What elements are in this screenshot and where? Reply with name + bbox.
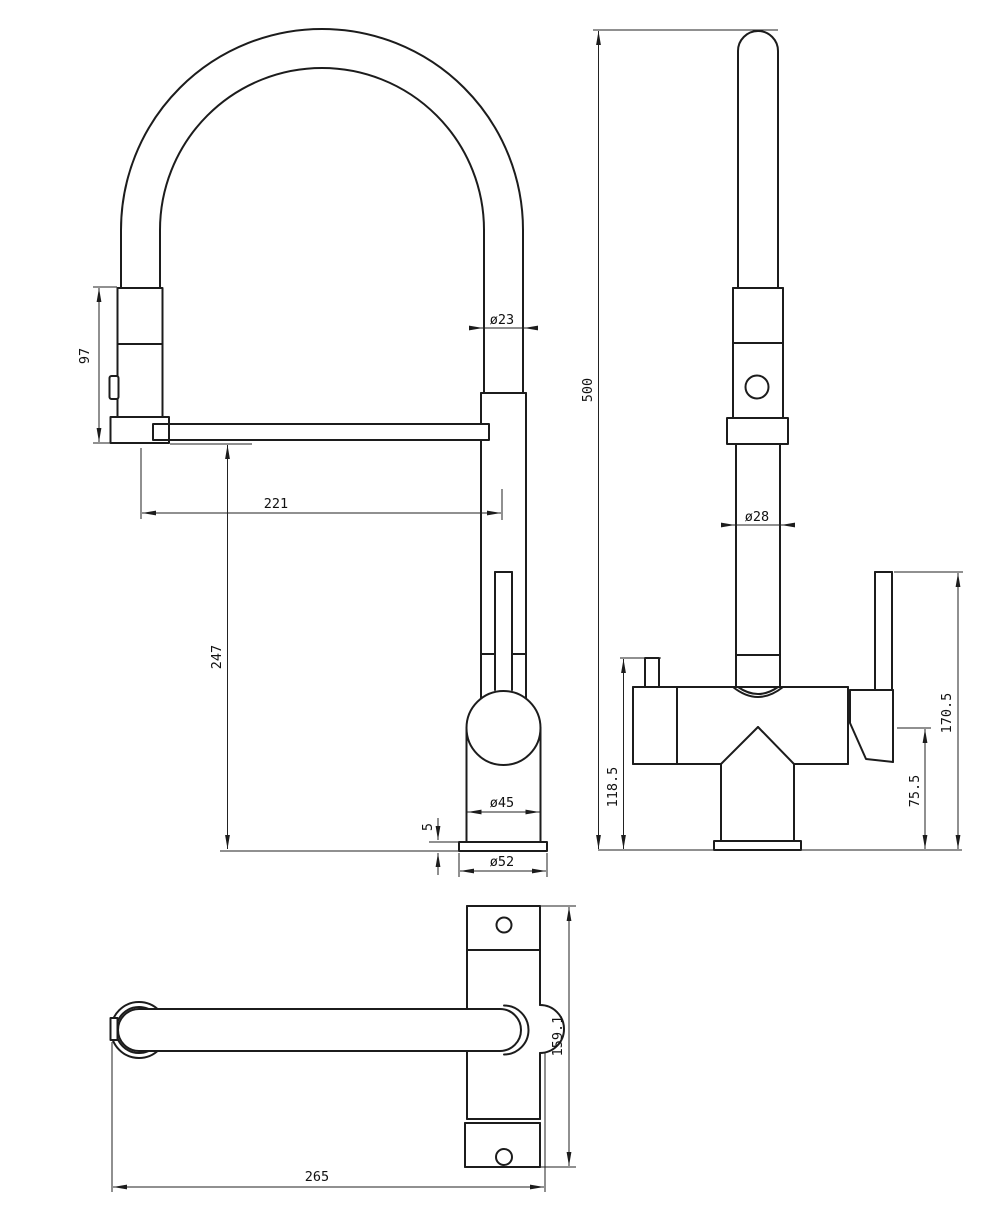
- dim-handle-base-height: 75.5: [907, 775, 923, 808]
- spray-button-side: [746, 376, 769, 399]
- faucet-body-front: [459, 691, 547, 851]
- dim-column-diameter: ø28: [745, 509, 769, 525]
- dim-depth: 159.1: [550, 1016, 566, 1057]
- spout-arm: [153, 424, 489, 440]
- dim-overall-length: 265: [305, 1169, 329, 1185]
- base-cone: [721, 727, 758, 841]
- collar-band: [727, 418, 788, 444]
- dim-handle-top-height: 170.5: [939, 693, 955, 734]
- ball-joint: [467, 691, 541, 765]
- spray-button: [110, 376, 119, 399]
- dim-spout-underside-height: 247: [209, 645, 225, 669]
- spray-clip-tab: [111, 1018, 118, 1040]
- dim-reach-to-axis: 221: [264, 496, 288, 512]
- dim-overall-height: 500: [580, 378, 596, 402]
- side-view: 500 ø28 118.5 75.5 170.5: [580, 30, 963, 850]
- top-view: 159.1 265: [111, 906, 577, 1192]
- side-column: [727, 31, 788, 697]
- dim-hose-diameter: ø23: [490, 312, 514, 328]
- mixer-handle: [850, 572, 893, 762]
- front-view: 97 ø23 221 247 ø45 5: [77, 29, 547, 877]
- side-dimensions: 500 ø28 118.5 75.5 170.5: [580, 30, 963, 850]
- faucet-technical-drawing: 97 ø23 221 247 ø45 5: [0, 0, 1000, 1209]
- handle-hole-bottom: [496, 1149, 512, 1165]
- filter-lever: [645, 658, 659, 687]
- spray-head: [110, 288, 170, 443]
- front-dimensions: 97 ø23 221 247 ø45 5: [77, 287, 547, 877]
- lever-hole-top: [497, 918, 512, 933]
- base-plate-side: [714, 841, 801, 850]
- hose-arc: [121, 29, 523, 393]
- technical-drawing-page: 97 ø23 221 247 ø45 5: [0, 0, 1000, 1209]
- dim-base-plate-thickness: 5: [420, 823, 436, 831]
- dim-base-diameter: ø52: [490, 854, 514, 870]
- base-plate-front: [459, 842, 547, 851]
- dim-filter-lever-height: 118.5: [605, 767, 621, 808]
- dim-spray-head-height: 97: [77, 348, 93, 364]
- dim-body-diameter: ø45: [490, 795, 514, 811]
- faucet-body-side: [633, 658, 848, 850]
- spout-arm-plan: [118, 1009, 521, 1051]
